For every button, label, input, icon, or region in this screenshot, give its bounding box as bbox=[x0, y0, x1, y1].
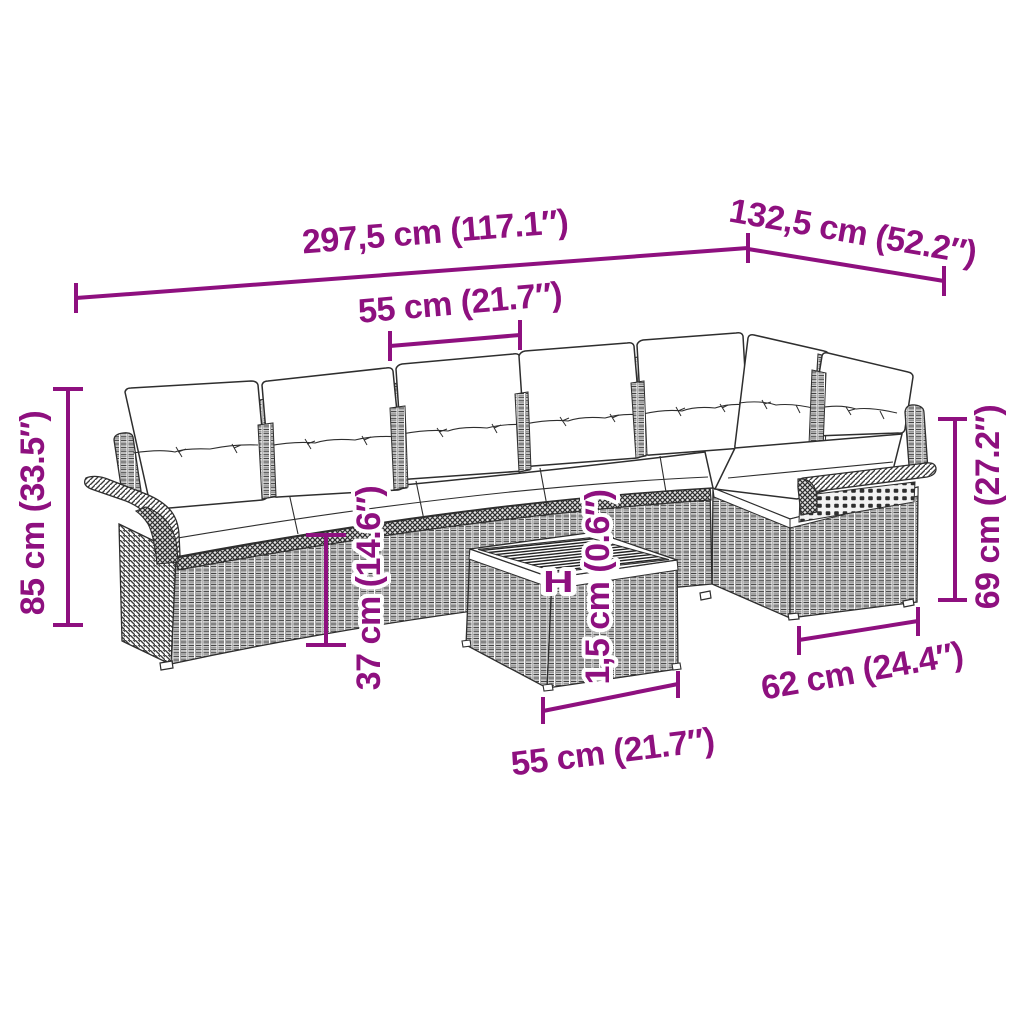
svg-text:69 cm (27.2″): 69 cm (27.2″) bbox=[969, 405, 1007, 609]
svg-text:1,5 cm (0.6″): 1,5 cm (0.6″) bbox=[579, 490, 617, 685]
svg-text:85 cm (33.5″): 85 cm (33.5″) bbox=[14, 411, 52, 615]
svg-text:37 cm (14.6″): 37 cm (14.6″) bbox=[350, 486, 388, 690]
svg-text:H: H bbox=[543, 564, 573, 598]
